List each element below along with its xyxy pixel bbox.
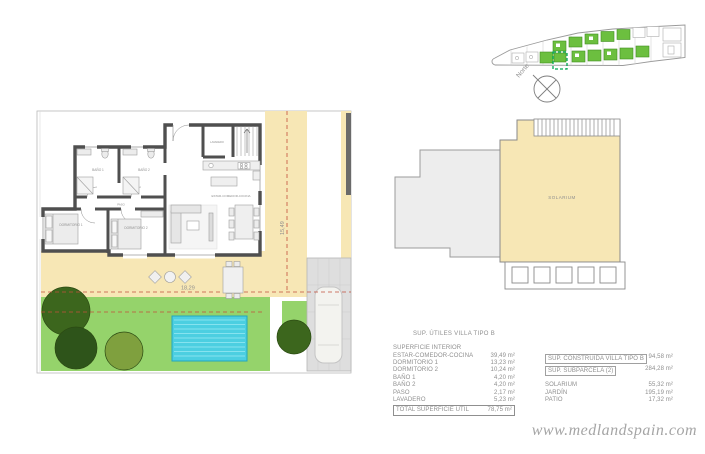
site-selected-unit	[553, 52, 567, 69]
row-value: 2,17 m²	[494, 390, 515, 397]
sofa-set	[169, 205, 217, 249]
room-label-living: ESTAR-COMEDOR-COCINA	[211, 194, 250, 198]
dim-width-label: 18,29	[181, 286, 195, 292]
table-row: DORMITORIO 2 10,24 m²	[393, 367, 515, 374]
summary-table: SUP. CONSTRUIDA VILLA TIPO B 94,58 m² SU…	[545, 354, 673, 404]
swimming-pool	[172, 316, 247, 361]
total-row: TOTAL SUPERFICIE ÚTIL 78,75 m²	[393, 405, 515, 416]
table-row: ESTAR-COMEDOR-COCINA 39,49 m²	[393, 353, 515, 360]
room-label-hall: PASO	[117, 203, 125, 207]
row-value: 10,24 m²	[491, 367, 515, 374]
roof-area	[395, 150, 505, 257]
room-label-bath1: BAÑO 1	[92, 167, 104, 172]
room-label-bath2: BAÑO 2	[138, 167, 150, 172]
driveway	[307, 258, 351, 371]
row-label: PATIO	[545, 397, 563, 404]
row-label: DORMITORIO 2	[393, 367, 438, 374]
utiles-table-title: SUP. ÚTILES VILLA TIPO B	[393, 331, 515, 338]
wardrobe	[141, 211, 163, 217]
table-row: BAÑO 1 4,20 m²	[393, 375, 515, 382]
room-label-bedroom1: DORMITORIO 1	[59, 223, 83, 227]
bed-icon	[111, 219, 141, 249]
row-value: 78,75 m²	[488, 407, 512, 414]
table-row: BAÑO 2 4,20 m²	[393, 382, 515, 389]
row-label: ESTAR-COMEDOR-COCINA	[393, 353, 473, 360]
watermark: www.medlandspain.com	[532, 422, 697, 440]
table-row: DORMITORIO 1 13,23 m²	[393, 360, 515, 367]
site-plan: Norte	[483, 16, 688, 111]
row-value: 4,20 m²	[494, 382, 515, 389]
row-value: 5,23 m²	[494, 397, 515, 404]
utiles-table-header: SUPERFICIE INTERIOR	[393, 345, 515, 352]
roof-plan: SOLARIUM	[382, 110, 682, 302]
room-label-bedroom2: DORMITORIO 2	[124, 226, 148, 230]
row-value: 39,49 m²	[491, 353, 515, 360]
compass-icon	[533, 75, 560, 102]
dim-height-label: 15,49	[280, 221, 286, 235]
row-value: 17,32 m²	[649, 397, 673, 404]
table-row: PASO 2,17 m²	[393, 390, 515, 397]
row-label: LAVADERO	[393, 397, 426, 404]
solarium-label: SOLARIUM	[548, 195, 576, 200]
row-value: 13,23 m²	[491, 360, 515, 367]
car	[315, 287, 342, 363]
table-row: JARDÍN 195,19 m²	[545, 390, 673, 397]
row-value: 195,19 m²	[645, 390, 673, 397]
row-label: SOLARIUM	[545, 382, 577, 389]
pergola	[534, 119, 620, 136]
row-label: SUP. CONSTRUIDA VILLA TIPO B	[545, 354, 647, 364]
row-value: 284,28 m²	[645, 366, 673, 373]
bed-icon	[45, 214, 78, 244]
dining-table	[229, 205, 259, 240]
ground-floor-plan: 18,29 15,49	[35, 105, 357, 383]
row-label: DORMITORIO 1	[393, 360, 438, 367]
table-row: PATIO 17,32 m²	[545, 397, 673, 404]
utiles-table: SUP. ÚTILES VILLA TIPO B SUPERFICIE INTE…	[393, 331, 515, 416]
room-label-laundry: LAVADERO	[210, 140, 224, 144]
row-label: BAÑO 2	[393, 382, 416, 389]
row-value: 4,20 m²	[494, 375, 515, 382]
solarium-area	[500, 120, 620, 262]
row-value: 55,32 m²	[649, 382, 673, 389]
table-row: LAVADERO 5,23 m²	[393, 397, 515, 404]
table-row: SUP. CONSTRUIDA VILLA TIPO B 94,58 m²	[545, 354, 673, 364]
table-row: SUP. SUBPARCELA (2) 284,28 m²	[545, 366, 673, 376]
row-value: 94,58 m²	[649, 354, 673, 361]
table-row: SOLARIUM 55,32 m²	[545, 382, 673, 389]
row-label: TOTAL SUPERFICIE ÚTIL	[396, 407, 469, 414]
row-label: JARDÍN	[545, 390, 567, 397]
row-label: SUP. SUBPARCELA (2)	[545, 366, 616, 376]
row-label: BAÑO 1	[393, 375, 416, 382]
beam-row	[505, 262, 625, 289]
boundary-wall	[346, 113, 351, 195]
row-label: PASO	[393, 390, 410, 397]
